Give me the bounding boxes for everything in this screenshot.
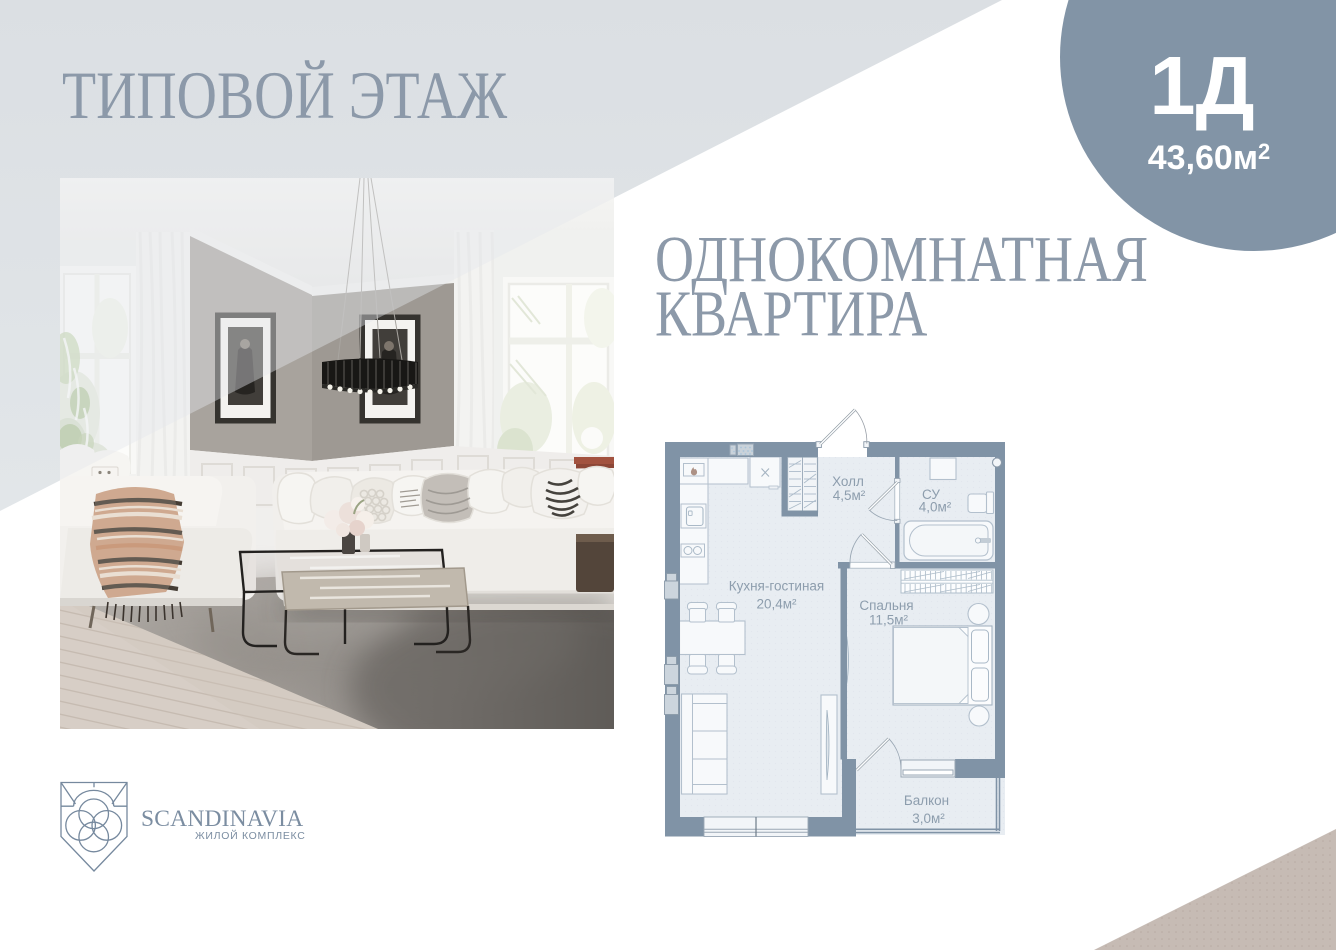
svg-text:4,0м²: 4,0м² <box>919 500 952 515</box>
svg-text:20,4м²: 20,4м² <box>756 597 797 612</box>
svg-text:Балкон: Балкон <box>904 793 949 808</box>
svg-text:4,5м²: 4,5м² <box>833 488 866 503</box>
svg-text:Спальня: Спальня <box>859 598 913 613</box>
svg-text:Кухня-гостиная: Кухня-гостиная <box>729 579 825 594</box>
svg-text:Холл: Холл <box>832 474 864 489</box>
svg-text:11,5м²: 11,5м² <box>869 613 909 628</box>
svg-text:3,0м²: 3,0м² <box>912 811 945 826</box>
